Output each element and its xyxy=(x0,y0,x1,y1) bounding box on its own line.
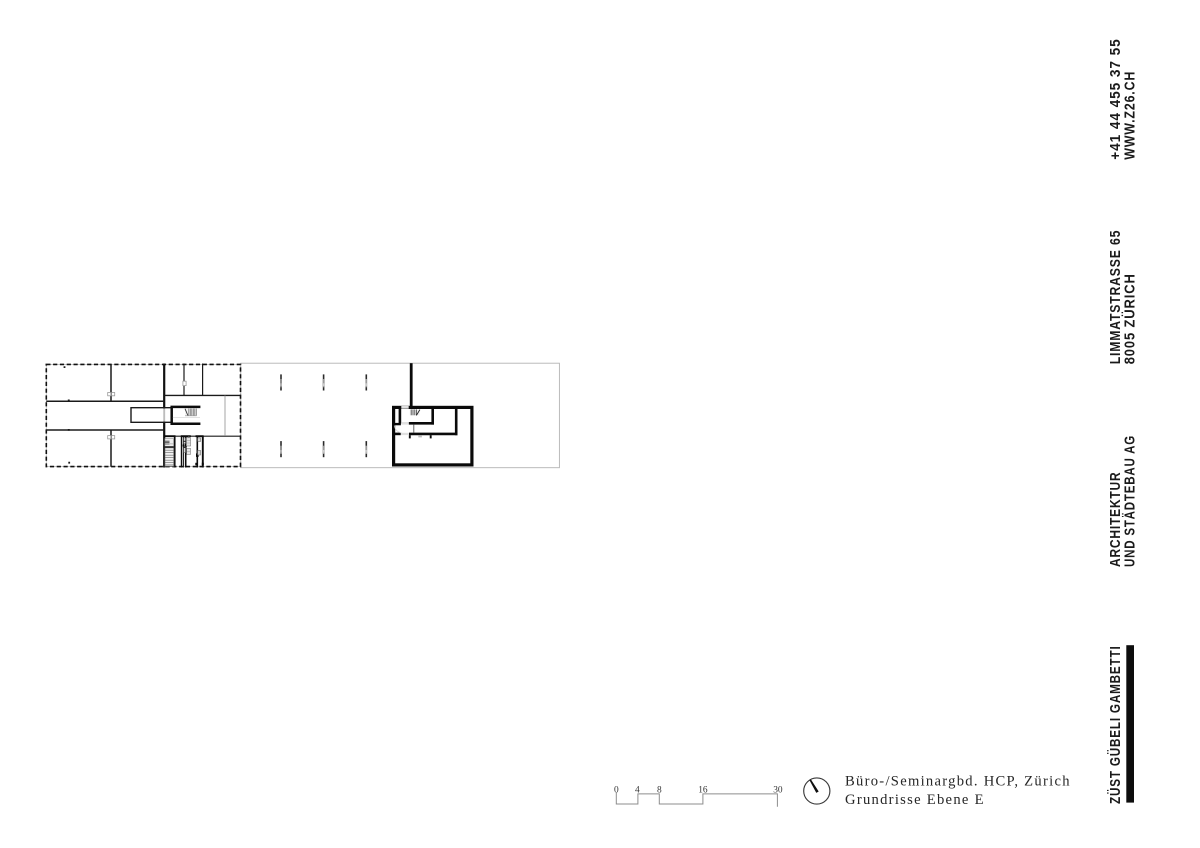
svg-text:ARCHITEKTUR: ARCHITEKTUR xyxy=(1108,472,1124,568)
svg-text:8005 ZÜRICH: 8005 ZÜRICH xyxy=(1122,273,1139,364)
svg-text:LIMMATSTRASSE 65: LIMMATSTRASSE 65 xyxy=(1108,230,1124,365)
svg-text:ZÜST GÜBELI GAMBETTI: ZÜST GÜBELI GAMBETTI xyxy=(1107,646,1124,805)
svg-text:30: 30 xyxy=(773,785,783,795)
svg-text:8: 8 xyxy=(657,785,662,795)
svg-text:UND STÄDTEBAU AG: UND STÄDTEBAU AG xyxy=(1122,435,1139,567)
svg-text:WWW.Z26.CH: WWW.Z26.CH xyxy=(1123,71,1139,160)
svg-text:16: 16 xyxy=(698,785,708,795)
svg-text:Grundrisse Ebene E: Grundrisse Ebene E xyxy=(845,792,984,808)
svg-text:Büro-/Seminargbd. HCP, Zürich: Büro-/Seminargbd. HCP, Zürich xyxy=(845,774,1070,790)
svg-text:+41 44 455 37 55: +41 44 455 37 55 xyxy=(1108,38,1124,160)
svg-text:0: 0 xyxy=(614,785,619,795)
svg-text:4: 4 xyxy=(635,785,640,795)
